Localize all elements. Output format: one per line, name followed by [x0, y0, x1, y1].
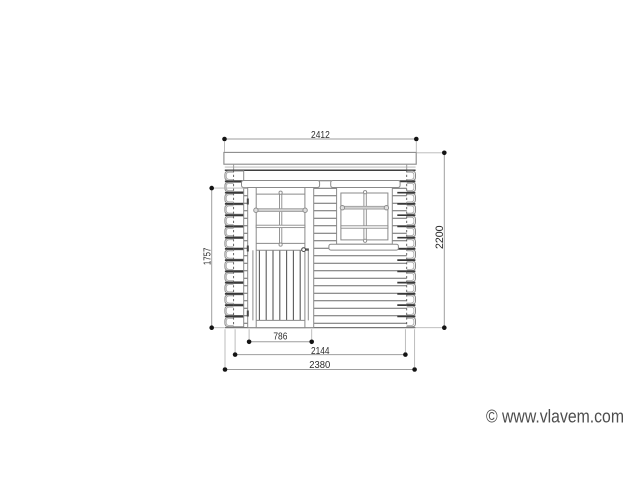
svg-text:786: 786	[273, 332, 287, 343]
svg-text:2200: 2200	[434, 225, 446, 249]
svg-text:2380: 2380	[309, 360, 331, 371]
svg-text:2412: 2412	[311, 130, 330, 141]
svg-text:2144: 2144	[311, 346, 330, 357]
svg-text:© www.vlavem.com: © www.vlavem.com	[486, 406, 624, 426]
svg-text:1757: 1757	[203, 248, 214, 266]
